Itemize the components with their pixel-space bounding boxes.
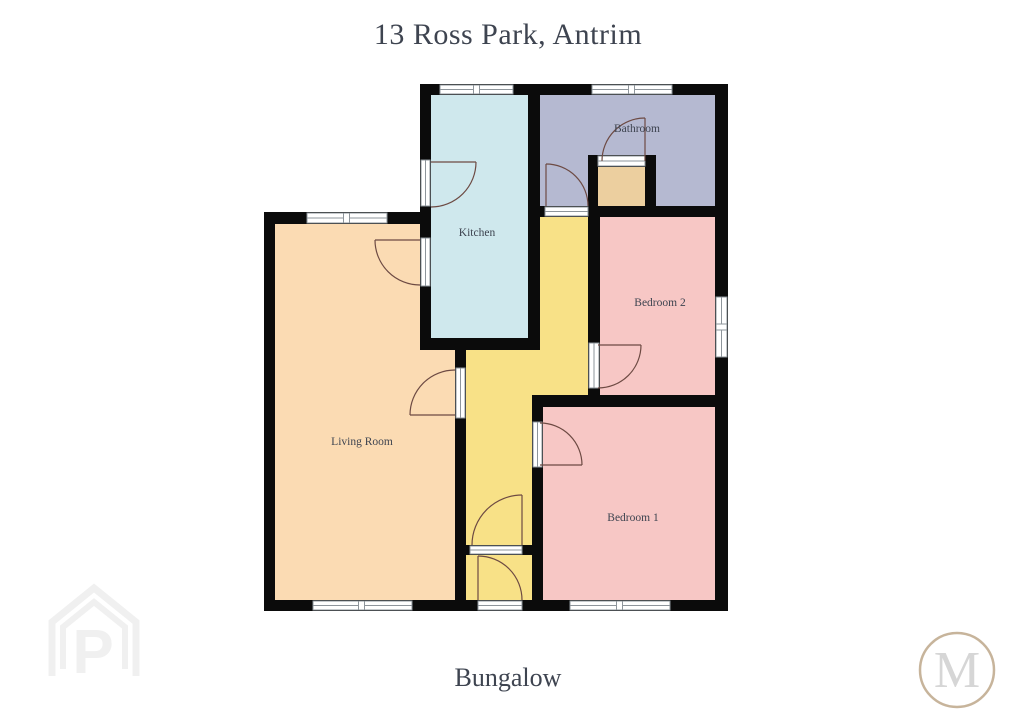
room-label-bathroom: Bathroom (614, 123, 660, 135)
floorplan-page: 13 Ross Park, Antrim (0, 0, 1024, 724)
window-kitchen-top (440, 85, 513, 94)
door-opening-bedroom1 (533, 422, 542, 467)
door-opening-front-entrance (478, 601, 522, 610)
room-label-bedroom1: Bedroom 1 (607, 512, 659, 524)
room-area-kitchen (425, 90, 535, 345)
window-living-room-top (307, 213, 387, 223)
window-bedroom1-bottom (570, 601, 670, 610)
door-opening-hot-press (598, 156, 645, 166)
watermark-letter-p: P (72, 618, 113, 687)
door-opening-bedroom2 (589, 343, 599, 388)
room-label-kitchen: Kitchen (459, 227, 496, 239)
circle-logo-watermark: M (920, 633, 994, 707)
room-label-bedroom2: Bedroom 2 (634, 297, 686, 309)
window-bedroom2-right (716, 297, 727, 357)
page-title: 13 Ross Park, Antrim (374, 18, 642, 51)
door-opening-hall-living (456, 368, 465, 418)
door-opening-kitchen-living (421, 238, 430, 286)
wall-segment (532, 395, 728, 407)
door-opening-vestibule (470, 546, 522, 554)
door-opening-kitchen-exterior (421, 160, 430, 206)
wall-segment (420, 338, 540, 350)
window-living-room-bottom (313, 601, 412, 610)
room-label-living-room: Living Room (331, 436, 393, 448)
floor-plan-canvas: 13 Ross Park, Antrim (0, 0, 1024, 724)
window-bathroom-top (592, 85, 672, 94)
watermark-letter-m: M (934, 642, 980, 699)
house-logo-watermark: P (52, 588, 136, 687)
door-opening-bathroom (545, 207, 588, 216)
property-type-label: Bungalow (455, 663, 562, 692)
wall-segment (264, 212, 275, 611)
